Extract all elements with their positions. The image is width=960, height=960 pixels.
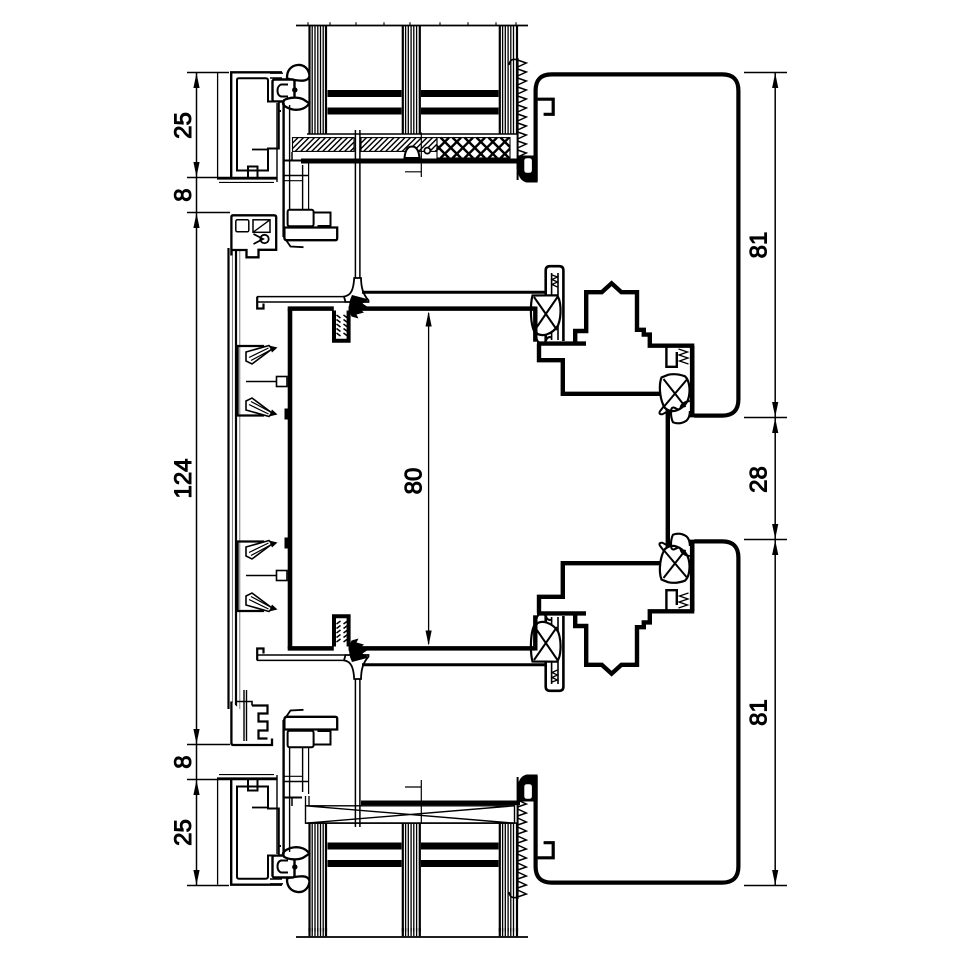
svg-text:80: 80 [401, 468, 428, 495]
svg-text:8: 8 [170, 755, 197, 768]
svg-text:25: 25 [170, 112, 197, 139]
svg-text:81: 81 [746, 232, 773, 259]
svg-text:124: 124 [170, 458, 197, 498]
svg-text:28: 28 [746, 466, 773, 493]
svg-text:25: 25 [170, 819, 197, 846]
svg-text:81: 81 [746, 699, 773, 726]
svg-text:8: 8 [170, 188, 197, 201]
